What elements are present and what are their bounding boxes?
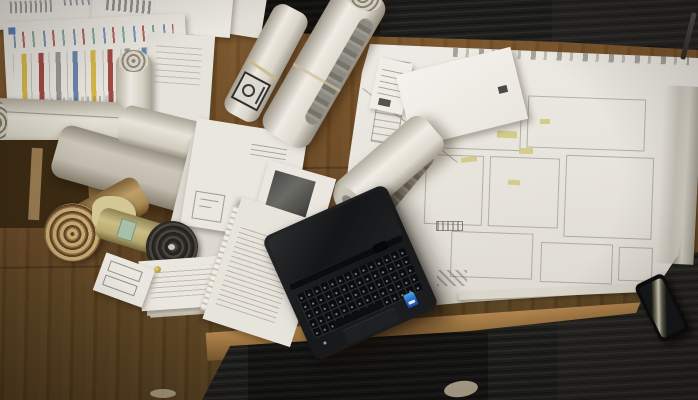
- plan-stamp-box: [436, 221, 463, 231]
- roll-spiral-end: [339, 0, 387, 17]
- fine-print: [250, 141, 288, 160]
- highlighter-mark: [497, 130, 517, 138]
- roll-spiral-end: [118, 50, 149, 72]
- mini-chart-print: [106, 0, 155, 14]
- status-led: [323, 341, 327, 345]
- carpet-tile-light: [552, 0, 698, 46]
- roll-label: [116, 218, 137, 242]
- small-plan-sketch: [191, 191, 225, 223]
- highlighter-mark: [519, 148, 533, 154]
- stamp-mark: [378, 98, 391, 107]
- highlighter-mark: [540, 119, 550, 124]
- plan-detail-sketch: [437, 270, 467, 286]
- brass-fastener: [154, 266, 161, 273]
- desk-scene-photo: Architect desk with blueprints, plan rol…: [0, 0, 698, 400]
- paper-scrap: [150, 389, 176, 398]
- mini-chart-print: [10, 0, 52, 13]
- logo-mark: [498, 85, 508, 94]
- highlighter-mark: [508, 180, 520, 186]
- mini-chart-print: [64, 0, 94, 6]
